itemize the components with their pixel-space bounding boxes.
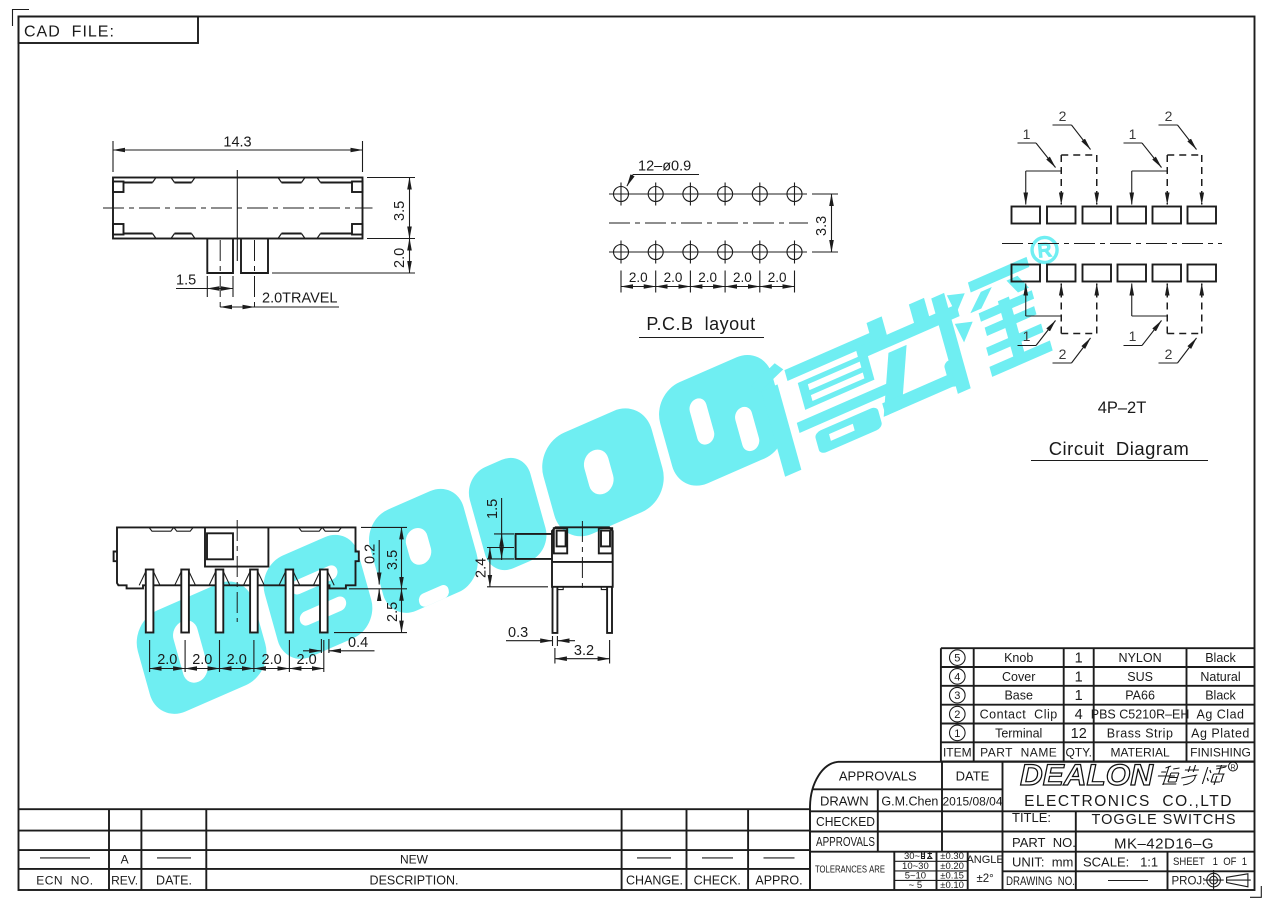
svg-text:PART NO.: PART NO. <box>1012 835 1076 850</box>
svg-text:1.5: 1.5 <box>485 499 501 519</box>
svg-text:1: 1 <box>1075 651 1083 667</box>
svg-text:P.C.B layout: P.C.B layout <box>646 314 755 334</box>
svg-text:0.4: 0.4 <box>348 635 368 651</box>
svg-text:Ag Plated: Ag Plated <box>1191 726 1250 740</box>
svg-text:2.0: 2.0 <box>227 652 247 668</box>
svg-text:CHECKED: CHECKED <box>816 815 875 829</box>
svg-text:DRAWING NO.: DRAWING NO. <box>1006 874 1075 888</box>
svg-text:ITEM: ITEM <box>943 746 972 760</box>
svg-text:2.0: 2.0 <box>664 270 683 285</box>
svg-text:3: 3 <box>954 690 960 702</box>
svg-text:2.0: 2.0 <box>392 248 408 268</box>
svg-text:ANGLE: ANGLE <box>966 854 1003 866</box>
svg-text:APPRO.: APPRO. <box>755 874 802 888</box>
svg-text:QTY.: QTY. <box>1065 746 1091 760</box>
svg-text:2.0: 2.0 <box>768 270 787 285</box>
svg-text:Ag Clad: Ag Clad <box>1197 708 1245 722</box>
svg-text:±2°: ±2° <box>976 873 993 885</box>
svg-text:MK–42D16–G: MK–42D16–G <box>1114 836 1214 853</box>
svg-text:3.3: 3.3 <box>814 216 830 236</box>
svg-text:A: A <box>121 853 129 867</box>
svg-text:G.M.Chen: G.M.Chen <box>881 795 938 809</box>
svg-text:Circuit Diagram: Circuit Diagram <box>1049 438 1190 459</box>
svg-text:2.4: 2.4 <box>474 558 490 578</box>
svg-text:2.0: 2.0 <box>629 270 648 285</box>
svg-text:4: 4 <box>954 671 960 683</box>
svg-text:Base: Base <box>1004 689 1033 703</box>
svg-text:2.0: 2.0 <box>192 652 212 668</box>
svg-text:0.2: 0.2 <box>363 544 379 564</box>
svg-text:UNIT: mm: UNIT: mm <box>1012 854 1073 869</box>
svg-text:2.0TRAVEL: 2.0TRAVEL <box>262 291 338 307</box>
svg-text:PA66: PA66 <box>1125 689 1155 703</box>
svg-text:DESCRIPTION.: DESCRIPTION. <box>370 874 459 888</box>
svg-text:2.0: 2.0 <box>157 652 177 668</box>
svg-text:MATERIAL: MATERIAL <box>1111 746 1170 760</box>
svg-text:APPROVALS: APPROVALS <box>839 769 917 784</box>
svg-text:2: 2 <box>1059 346 1067 362</box>
svg-text:3.5: 3.5 <box>392 201 408 221</box>
svg-text:2.0: 2.0 <box>297 652 317 668</box>
svg-text:DEALON: DEALON <box>1020 759 1154 792</box>
svg-text:3.5: 3.5 <box>385 550 401 570</box>
svg-text:1: 1 <box>1129 126 1137 142</box>
svg-text:SUS: SUS <box>1127 670 1153 684</box>
svg-text:R: R <box>1230 765 1235 772</box>
svg-text:PART NAME: PART NAME <box>980 746 1057 760</box>
svg-text:DATE.: DATE. <box>156 874 192 888</box>
svg-text:3.2: 3.2 <box>574 643 594 659</box>
svg-text:12–ø0.9: 12–ø0.9 <box>638 159 691 175</box>
svg-text:Natural: Natural <box>1200 670 1240 684</box>
svg-text:1: 1 <box>1075 669 1083 685</box>
svg-text:TOLERANCES ARE: TOLERANCES ARE <box>815 865 885 876</box>
svg-text:Cover: Cover <box>1002 670 1035 684</box>
svg-text:2015/08/04: 2015/08/04 <box>942 795 1002 809</box>
svg-text:2.0: 2.0 <box>262 652 282 668</box>
svg-text:CAD FILE:: CAD FILE: <box>24 24 115 41</box>
svg-text:FINISHING: FINISHING <box>1190 746 1251 760</box>
svg-text:4P–2T: 4P–2T <box>1098 399 1147 417</box>
svg-text:CHANGE.: CHANGE. <box>626 874 683 888</box>
svg-text:±0.10: ±0.10 <box>940 880 964 891</box>
svg-text:NEW: NEW <box>400 853 429 867</box>
svg-text:0.3: 0.3 <box>508 625 528 641</box>
svg-text:1: 1 <box>1023 126 1031 142</box>
svg-text:2: 2 <box>1059 108 1067 124</box>
svg-text:5: 5 <box>954 653 960 665</box>
svg-text:2.5: 2.5 <box>385 602 401 622</box>
svg-text:1.5: 1.5 <box>176 273 196 289</box>
svg-text:SHEET 1 OF 1: SHEET 1 OF 1 <box>1173 856 1247 868</box>
svg-text:1: 1 <box>1023 328 1031 344</box>
svg-text:4: 4 <box>1075 707 1083 723</box>
svg-text:PROJ:: PROJ: <box>1172 876 1206 888</box>
svg-text:Contact Clip: Contact Clip <box>980 708 1058 722</box>
svg-text:Black: Black <box>1205 689 1236 703</box>
svg-text:SCALE: 1:1: SCALE: 1:1 <box>1083 854 1158 869</box>
svg-text:ELECTRONICS CO.,LTD: ELECTRONICS CO.,LTD <box>1024 793 1233 810</box>
svg-text:NYLON: NYLON <box>1119 651 1162 665</box>
svg-text:1: 1 <box>1129 328 1137 344</box>
svg-text:TOGGLE SWITCHS: TOGGLE SWITCHS <box>1091 812 1236 828</box>
svg-text:2: 2 <box>1165 108 1173 124</box>
svg-text:1: 1 <box>954 728 960 740</box>
svg-text:12: 12 <box>1071 726 1087 742</box>
svg-text:2: 2 <box>1165 346 1173 362</box>
svg-text:2.0: 2.0 <box>698 270 717 285</box>
svg-text:Black: Black <box>1205 651 1236 665</box>
svg-text:CHECK.: CHECK. <box>694 874 741 888</box>
svg-text:DATE: DATE <box>956 769 990 784</box>
svg-text:Knob: Knob <box>1004 651 1033 665</box>
svg-text:1: 1 <box>1075 688 1083 704</box>
svg-text:~ 5: ~ 5 <box>909 880 922 891</box>
svg-text:Brass Strip: Brass Strip <box>1107 726 1174 740</box>
svg-text:14.3: 14.3 <box>223 135 251 151</box>
svg-text:Terminal: Terminal <box>995 726 1042 740</box>
svg-text:REV.: REV. <box>111 874 138 888</box>
svg-text:2.0: 2.0 <box>733 270 752 285</box>
svg-text:DRAWN: DRAWN <box>820 794 869 809</box>
svg-text:ECN NO.: ECN NO. <box>36 874 93 888</box>
svg-text:PBS C5210R–EH: PBS C5210R–EH <box>1091 708 1190 722</box>
svg-text:2: 2 <box>954 709 960 721</box>
svg-text:APPROVALS: APPROVALS <box>816 835 875 849</box>
svg-text:TITLE:: TITLE: <box>1012 810 1051 825</box>
